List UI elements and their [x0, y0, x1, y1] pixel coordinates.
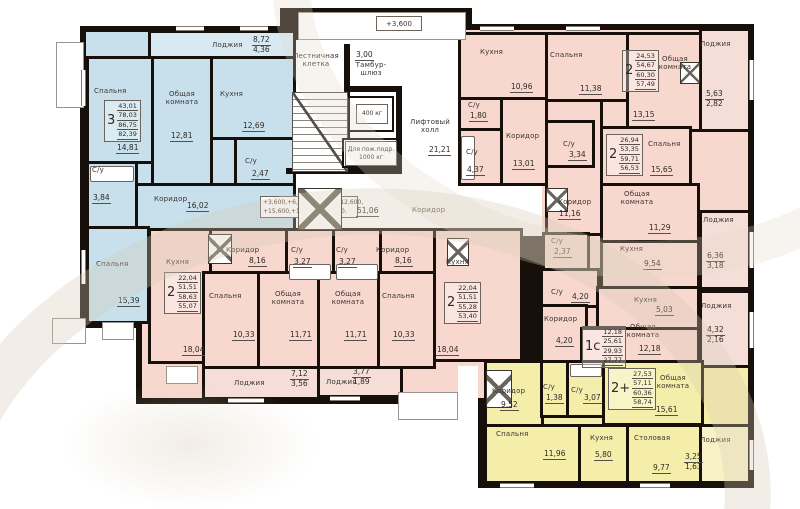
label-f-kitchen: Кухня: [590, 434, 613, 442]
unit-val: 51,51: [177, 283, 198, 292]
label-blue-wc1: С/у: [92, 166, 104, 174]
area-f-dining: 9,77: [652, 464, 671, 474]
label-a-loggia: Лоджия: [700, 40, 731, 48]
area-f-bedroom: 11,96: [543, 450, 566, 460]
unit-val: 59,71: [619, 155, 640, 164]
unit-val: 55,28: [457, 303, 478, 312]
area-a-living: 13,15: [632, 111, 655, 121]
label-f-bedroom: Спальня: [496, 430, 529, 438]
area-a-kitchen: 10,96: [510, 83, 533, 93]
room-e-living: [317, 271, 380, 369]
area-c-loggia: 4,322,16: [706, 326, 725, 344]
label-b-bedroom: Спальня: [648, 140, 681, 148]
window-a-loggia: [749, 60, 754, 100]
label-c-corridor: Коридор: [544, 315, 577, 323]
window-f-loggia: [749, 440, 754, 470]
label-b-living: Общая комната: [614, 190, 660, 207]
label-e-wc: С/у: [336, 246, 348, 254]
label-blue-bedroom1: Спальня: [94, 87, 127, 95]
area-a-loggia: 5,632,82: [705, 90, 724, 108]
area-f-wc1: 1,38: [545, 394, 564, 404]
area-a-wc1: 1,80: [469, 112, 488, 122]
label-a-corridor: Коридор: [506, 132, 539, 140]
unit-val: 26,94: [619, 136, 640, 145]
label-b-corridor: Коридор: [558, 198, 591, 206]
unit-val: 58,74: [632, 398, 653, 407]
loggia-area-half: 2,16: [706, 336, 725, 345]
unit-rooms-count: 1с: [585, 340, 600, 353]
area-blue-wc1: 3,84: [92, 194, 111, 204]
window-f-dining: [640, 483, 670, 488]
room-c-wc: [540, 268, 600, 308]
unit-val: 51,51: [457, 293, 478, 302]
bay-left-bottom: [52, 318, 86, 344]
loggia-area-half: 2,82: [705, 100, 724, 109]
label-staircase: Лестничная клетка: [286, 52, 346, 69]
unit-stats-d: 222,0451,5158,6355,07: [164, 272, 201, 314]
room-a-corridor: [500, 97, 548, 186]
window-b-loggia: [749, 232, 754, 268]
room-f-loggia: [699, 424, 751, 484]
area-d-corridor: 8,16: [248, 257, 267, 267]
unit-rooms-count: 3: [107, 114, 115, 127]
area-a-bedroom: 11,38: [579, 85, 602, 95]
stair-direction-line: [293, 93, 347, 171]
window-blue-bedroom1: [81, 70, 86, 106]
elevator-fire-capacity: Для пож.подр. 1000 кг: [345, 141, 397, 166]
area-blue-bedroom2: 15,39: [117, 297, 140, 307]
unit-rooms-count: 2: [625, 64, 633, 77]
room-blue-living: [151, 56, 213, 186]
floor-plan: +3,600 400 кг Для пож.подр. 1000 кг Лест…: [0, 0, 800, 509]
unit-rooms-count: 2: [609, 148, 617, 161]
label-blue-loggia: Лоджия: [212, 41, 243, 49]
unit-val: 27,77: [602, 356, 623, 365]
area-d-kitchen: 18,04: [182, 346, 205, 356]
area-f-loggia: 3,251,63: [684, 453, 703, 471]
room-blue-wc2: [234, 137, 296, 189]
area-c-living: 12,18: [638, 345, 661, 355]
label-main-corridor: Коридор: [412, 206, 445, 214]
area-a-corridor: 13,01: [512, 160, 535, 170]
unit-val: 86,75: [117, 121, 138, 130]
label-f-wc1: С/у: [543, 383, 555, 391]
label-a-kitchen: Кухня: [480, 48, 503, 56]
elevation-mark-top: +3,600: [376, 16, 422, 31]
area-e-kitchen: 18,04: [436, 346, 459, 356]
area-d-wc: 3,27: [293, 258, 312, 268]
window-f-bedroom: [500, 483, 534, 488]
area-e-bedroom: 10,33: [392, 331, 415, 341]
label-a-wc1: С/у: [468, 101, 480, 109]
area-d-bedroom: 10,33: [232, 331, 255, 341]
area-blue-corridor: 16,02: [186, 202, 209, 212]
area-f-wc2: 3,07: [583, 394, 602, 404]
core-partition-2: [344, 86, 402, 92]
bay-blue-bedroom2: [102, 322, 134, 340]
area-d-living: 11,71: [289, 331, 312, 341]
unit-val: 22,04: [177, 274, 198, 283]
area-blue-bedroom1: 14,81: [116, 144, 139, 154]
label-blue-bedroom2: Спальня: [96, 260, 129, 268]
label-d-corridor: Коридор: [226, 246, 259, 254]
area-blue-kitchen: 12,69: [242, 122, 265, 132]
area-c-kitchen: 5,03: [655, 306, 674, 316]
area-c-wc: 4,20: [571, 293, 590, 303]
area-c-corridor: 4,20: [555, 337, 574, 347]
unit-val: 78,03: [117, 111, 138, 120]
unit-val: 22,04: [457, 284, 478, 293]
unit-val: 58,63: [177, 293, 198, 302]
unit-val: 57,49: [635, 80, 656, 89]
window-e-loggia: [330, 396, 360, 401]
label-c-loggia: Лоджия: [701, 302, 732, 310]
label-a-wc2: С/у: [466, 148, 478, 156]
label-a-wc3: С/у: [563, 140, 575, 148]
label-lift-hall: Лифтовый холл: [400, 118, 460, 135]
area-e-wc: 3,27: [338, 258, 357, 268]
area-tambour: 3,00: [355, 51, 374, 61]
area-e-corridor: 8,16: [394, 257, 413, 267]
label-c-kitchen: Кухня: [634, 296, 657, 304]
label-d-living: Общая комната: [266, 290, 310, 307]
window-d-loggia: [228, 398, 264, 403]
unit-val: 60,30: [635, 71, 656, 80]
area-e-living: 11,71: [344, 331, 367, 341]
unit-stats-f: 2+27,5357,1160,3658,74: [608, 368, 656, 410]
unit-val: 82,39: [117, 130, 138, 139]
loggia-area-half: 1,89: [352, 378, 371, 387]
label-blue-kitchen: Кухня: [220, 90, 243, 98]
label-f-living: Общая комната: [650, 374, 696, 391]
unit-val: 55,07: [177, 302, 198, 311]
area-lift-hall: 21,21: [428, 146, 451, 156]
label-d-wc: С/у: [291, 246, 303, 254]
bay-d-kitchen: [166, 366, 198, 384]
label-d-bedroom: Спальня: [209, 292, 242, 300]
window-c-loggia: [749, 312, 754, 348]
label-d-kitchen: Кухня: [166, 258, 189, 266]
label-tambour: Тамбур- шлюз: [348, 61, 394, 78]
unit-rooms-count: 2+: [611, 382, 630, 395]
area-main-corridor: 51,06: [356, 207, 379, 217]
area-blue-loggia: 8,724,36: [252, 36, 271, 54]
area-b-bedroom: 15,65: [650, 166, 673, 176]
loggia-area-half: 3,18: [706, 262, 725, 271]
unit-val: 53,35: [619, 145, 640, 154]
unit-stats-e: 222,0451,5155,2853,40: [444, 282, 481, 324]
loggia-area-half: 4,36: [252, 46, 271, 55]
label-a-bedroom: Спальня: [550, 51, 583, 59]
label-blue-wc2: С/у: [245, 157, 257, 165]
label-blue-corridor: Коридор: [154, 195, 187, 203]
label-a-living: Общая комната: [652, 55, 698, 72]
window-a-bedroom: [566, 26, 600, 31]
label-f-corridor: Коридор: [492, 387, 525, 395]
bay-left-top: [56, 42, 84, 108]
gap-white: [458, 366, 478, 404]
label-b-loggia: Лоджия: [703, 216, 734, 224]
label-d-loggia: Лоджия: [234, 379, 265, 387]
window-a-kitchen: [480, 26, 514, 31]
area-b-loggia: 6,363,18: [706, 252, 725, 270]
area-b-corridor: 11,16: [558, 210, 581, 220]
area-d-loggia: 7,123,56: [290, 370, 309, 388]
label-c-wc: С/у: [551, 288, 563, 296]
area-b-wc: 2,37: [553, 248, 572, 258]
loggia-area-half: 1,63: [684, 463, 703, 472]
unit-stats-3room: 343,0178,0386,7582,39: [104, 100, 141, 142]
area-b-kitchen: 9,54: [643, 260, 662, 270]
window-blue-loggia-1: [176, 26, 204, 31]
unit-rooms-count: 2: [167, 286, 175, 299]
label-blue-living: Общая комната: [158, 90, 206, 107]
room-e-bedroom: [377, 271, 436, 369]
unit-val: 53,40: [457, 312, 478, 321]
area-blue-living: 12,81: [170, 132, 193, 142]
shaft-core: [298, 188, 342, 230]
room-blue-bedroom2: [86, 226, 150, 324]
window-blue-bedroom2: [81, 250, 86, 284]
label-e-corridor: Коридор: [376, 246, 409, 254]
bay-bottom-center: [398, 392, 458, 420]
label-b-kitchen: Кухня: [620, 245, 643, 253]
area-f-kitchen: 5,80: [594, 451, 613, 461]
area-a-wc2: 4,37: [466, 166, 485, 176]
area-blue-wc2: 2,47: [251, 170, 270, 180]
label-c-living: Общая комната: [620, 323, 666, 340]
area-a-wc3: 3,34: [568, 151, 587, 161]
label-f-loggia: Лоджия: [700, 436, 731, 444]
unit-val: 43,01: [117, 102, 138, 111]
staircase: [292, 92, 348, 172]
unit-stats-b: 226,9453,3559,7156,53: [606, 134, 643, 176]
unit-val: 56,53: [619, 164, 640, 173]
elevator-small-capacity: 400 кг: [356, 104, 388, 124]
room-d-living: [257, 271, 320, 369]
unit-val: 29,93: [602, 347, 623, 356]
label-f-wc2: С/у: [571, 386, 583, 394]
window-blue-loggia-2: [240, 26, 268, 31]
label-b-wc: С/у: [551, 237, 563, 245]
area-f-living: 15,61: [655, 406, 678, 416]
room-a-kitchen: [458, 32, 548, 100]
area-f-corridor: 9,52: [500, 401, 519, 411]
label-e-living: Общая комната: [326, 290, 370, 307]
unit-rooms-count: 2: [447, 296, 455, 309]
label-e-kitchen: Кухня: [446, 258, 469, 266]
area-e-loggia: 3,771,89: [352, 368, 371, 386]
loggia-area-half: 3,56: [290, 380, 309, 389]
label-e-bedroom: Спальня: [382, 292, 415, 300]
room-d-bedroom: [202, 271, 260, 369]
label-f-dining: Столовая: [634, 434, 670, 442]
area-b-living: 11,29: [648, 224, 671, 234]
